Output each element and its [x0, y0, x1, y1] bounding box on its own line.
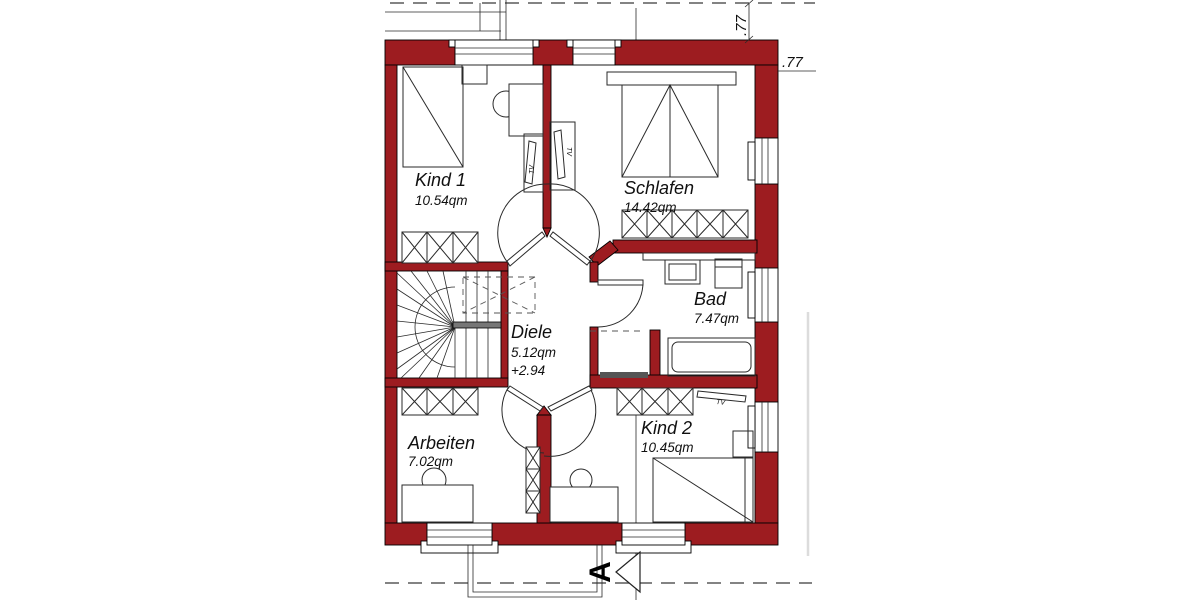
label-arbeiten-area: 7.02qm — [408, 454, 453, 469]
arbeiten-wardrobe — [402, 388, 478, 415]
window-kind1-top — [449, 40, 539, 65]
label-kind1-area: 10.54qm — [415, 193, 468, 208]
window-arbeiten-bottom — [421, 523, 498, 553]
wall-schlafen-bad — [613, 240, 757, 253]
label-arbeiten: Arbeiten — [407, 433, 475, 453]
wall-left — [385, 65, 397, 523]
kind1-tv — [525, 141, 536, 184]
label-diele-area: 5.12qm — [511, 345, 556, 360]
schlafen-tv-label: TV — [565, 147, 572, 157]
dim-value-vertical: .77 — [733, 14, 750, 36]
bad-wc — [715, 259, 742, 288]
roof-edge-lines — [385, 0, 506, 40]
section-arrow-icon — [616, 552, 640, 592]
wall-right-1 — [755, 65, 778, 138]
kind1-wardrobe — [402, 232, 478, 263]
floorplan-drawing: TV TV — [0, 0, 1200, 600]
wall-stair-arbeiten — [385, 378, 508, 387]
stair-winder-treads — [397, 271, 455, 378]
door-schlafen — [547, 184, 599, 265]
arbeiten-furniture — [402, 468, 473, 522]
wall-bottom-mid — [492, 523, 622, 545]
wall-right-2 — [755, 184, 778, 268]
kind2-desk — [550, 487, 618, 522]
wall-diele-bad-upper — [590, 262, 598, 282]
label-schlafen: Schlafen — [624, 178, 694, 198]
wall-top-left — [385, 40, 455, 65]
label-diele: Diele — [511, 322, 552, 342]
wall-right-4 — [755, 452, 778, 523]
window-schlafen-right — [748, 138, 778, 184]
label-bad-area: 7.47qm — [694, 311, 739, 326]
kind1-tv-label: TV — [529, 164, 536, 174]
section-letter: A — [584, 561, 617, 583]
wall-bad-stub — [650, 330, 660, 378]
bad-bathtub — [668, 338, 755, 376]
label-bad: Bad — [694, 289, 727, 309]
door-kind2 — [544, 386, 596, 456]
door-bad — [590, 280, 643, 331]
wall-bottom-right — [685, 523, 778, 545]
door-kind1 — [498, 184, 547, 266]
label-diele-level: +2.94 — [511, 363, 545, 378]
wall-top-right — [615, 40, 778, 65]
label-schlafen-area: 14.42qm — [624, 200, 677, 215]
schlafen-furniture: TV — [550, 72, 736, 190]
kind2-wardrobe — [617, 388, 693, 415]
wall-stair-rail — [501, 271, 508, 378]
label-kind2: Kind 2 — [641, 418, 692, 438]
schlafen-tv — [554, 130, 565, 179]
kind1-sill-box — [462, 65, 487, 84]
label-kind1: Kind 1 — [415, 170, 466, 190]
bad-radiator — [600, 372, 648, 378]
kind1-desk — [509, 84, 543, 136]
window-bad-right — [748, 268, 778, 322]
window-schlafen-top — [567, 40, 621, 65]
label-kind2-area: 10.45qm — [641, 440, 694, 455]
section-marker: A — [584, 552, 640, 592]
stair-opening-dashed — [463, 277, 535, 313]
stair-handrail — [453, 322, 501, 328]
schlafen-headboard — [607, 72, 736, 85]
arbeiten-desk — [402, 485, 473, 522]
installation-shaft — [526, 447, 540, 513]
window-kind2-bottom — [616, 523, 691, 553]
kind2-tv-label: TV — [716, 399, 727, 407]
wall-right-3 — [755, 322, 778, 402]
floorplan-canvas: TV TV — [0, 0, 1200, 600]
dim-value-horizontal: .77 — [782, 54, 804, 71]
